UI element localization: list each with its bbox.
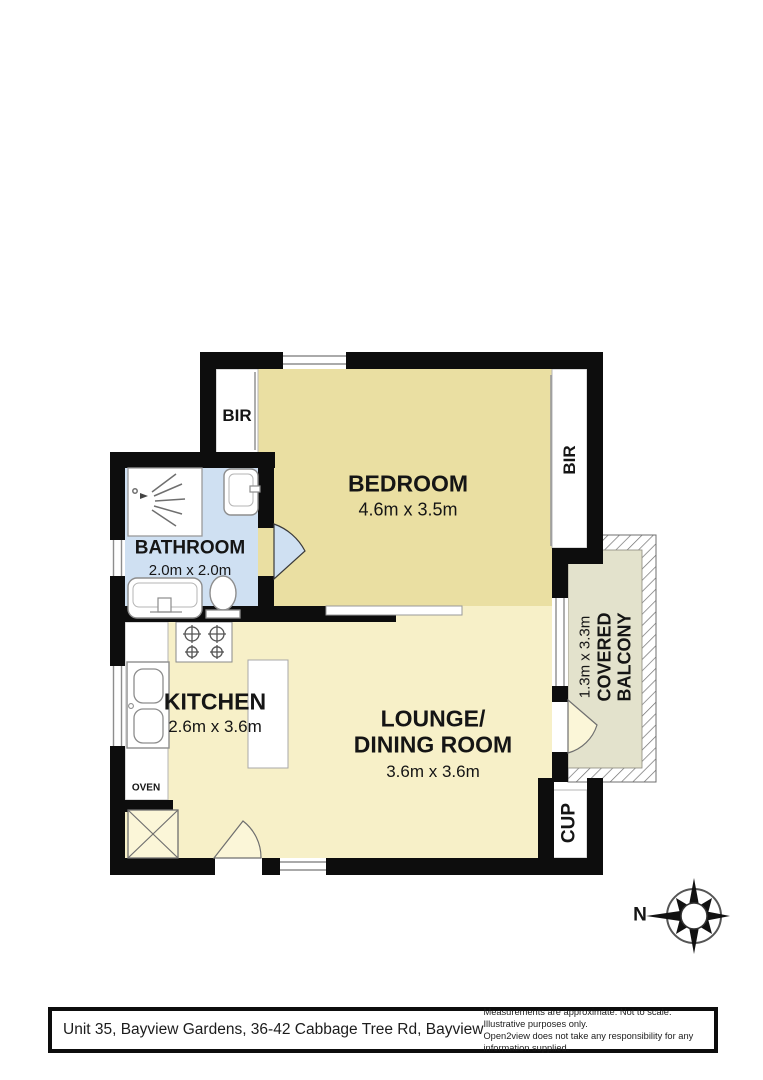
vanity-icon <box>128 578 202 618</box>
lounge-label-1: LOUNGE/ <box>381 707 486 732</box>
cup-label: CUP <box>560 803 581 843</box>
oven-label: OVEN <box>132 784 160 795</box>
bathroom-dims: 2.0m x 2.0m <box>149 563 232 579</box>
wall-bathroom-top <box>110 452 275 468</box>
compass-rose <box>646 878 730 954</box>
wall-bottom-2 <box>262 858 280 875</box>
wall-bottom-3 <box>326 858 603 875</box>
window-bottom <box>280 858 326 875</box>
compass-north-label: N <box>633 906 647 927</box>
wall-bottom-1 <box>110 858 215 875</box>
balcony-dims: 1.3m x 3.3m <box>577 612 594 701</box>
bedroom-dims: 4.6m x 3.5m <box>358 500 457 519</box>
floorplan-page: BEDROOM 4.6m x 3.5m BATHROOM 2.0m x 2.0m… <box>0 0 763 1080</box>
footer-disclaimer-line1: Measurements are approximate. Not to sca… <box>483 1006 709 1030</box>
kitchen-dims: 2.6m x 3.6m <box>168 718 262 736</box>
balcony-label-2: BALCONY <box>614 612 634 701</box>
wall-lounge-right-2 <box>552 686 568 702</box>
window-bathroom <box>110 540 125 576</box>
bedroom-label: BEDROOM <box>348 472 468 497</box>
balcony-label-block: 1.3m x 3.3m COVERED BALCONY <box>577 612 634 701</box>
lounge-label-2: DINING ROOM <box>354 733 512 758</box>
footer-bar: Unit 35, Bayview Gardens, 36-42 Cabbage … <box>48 1007 718 1053</box>
wall-balcony-top-corner <box>552 548 603 564</box>
kitchen-label: KITCHEN <box>164 690 266 715</box>
balcony-label-1: COVERED <box>594 612 614 701</box>
wall-right-outer <box>587 352 603 564</box>
lounge-dims: 3.6m x 3.6m <box>386 763 480 781</box>
wall-top <box>200 352 603 369</box>
shower-base <box>128 468 202 536</box>
double-sink-icon <box>127 662 169 748</box>
footer-address: Unit 35, Bayview Gardens, 36-42 Cabbage … <box>52 1021 483 1039</box>
footer-disclaimer-line2: Open2view does not take any responsibili… <box>483 1030 709 1054</box>
bir-left-label: BIR <box>222 407 251 425</box>
cooktop-counter <box>176 622 232 662</box>
crossed-unit-icon <box>128 810 178 858</box>
wall-bir-left <box>200 352 216 468</box>
window-top <box>283 352 346 369</box>
bathroom-label: BATHROOM <box>135 539 245 560</box>
wall-left-outer <box>110 452 125 875</box>
floorplan-drawing <box>0 0 763 1080</box>
window-lounge-balcony <box>552 598 568 686</box>
bedroom-sliding-panel <box>326 606 462 615</box>
basin-icon <box>224 469 260 515</box>
footer-disclaimer: Measurements are approximate. Not to sca… <box>483 1006 714 1054</box>
wall-lounge-right-3 <box>552 752 568 782</box>
window-kitchen <box>110 666 125 746</box>
bir-right-label: BIR <box>561 445 579 474</box>
wall-lounge-right-1 <box>552 564 568 598</box>
